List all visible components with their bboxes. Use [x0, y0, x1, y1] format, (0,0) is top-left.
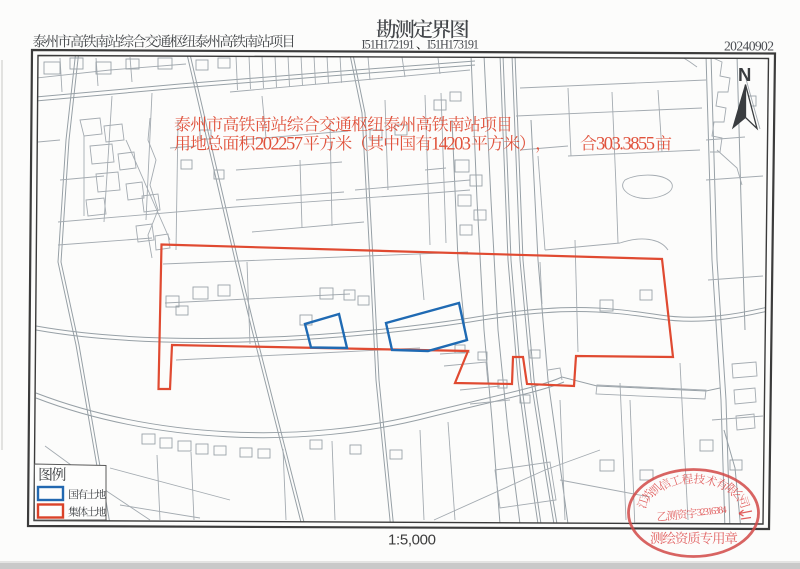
- svg-text:14203: 14203: [431, 134, 471, 154]
- svg-text:20240902: 20240902: [724, 39, 774, 54]
- svg-text:303.3855: 303.3855: [596, 134, 655, 154]
- svg-text:1:5,000: 1:5,000: [388, 532, 436, 549]
- svg-text:I51H173191: I51H173191: [427, 38, 479, 52]
- svg-text:N: N: [738, 64, 751, 85]
- svg-text:I51H172191: I51H172191: [362, 38, 415, 52]
- svg-text:202257: 202257: [255, 134, 303, 154]
